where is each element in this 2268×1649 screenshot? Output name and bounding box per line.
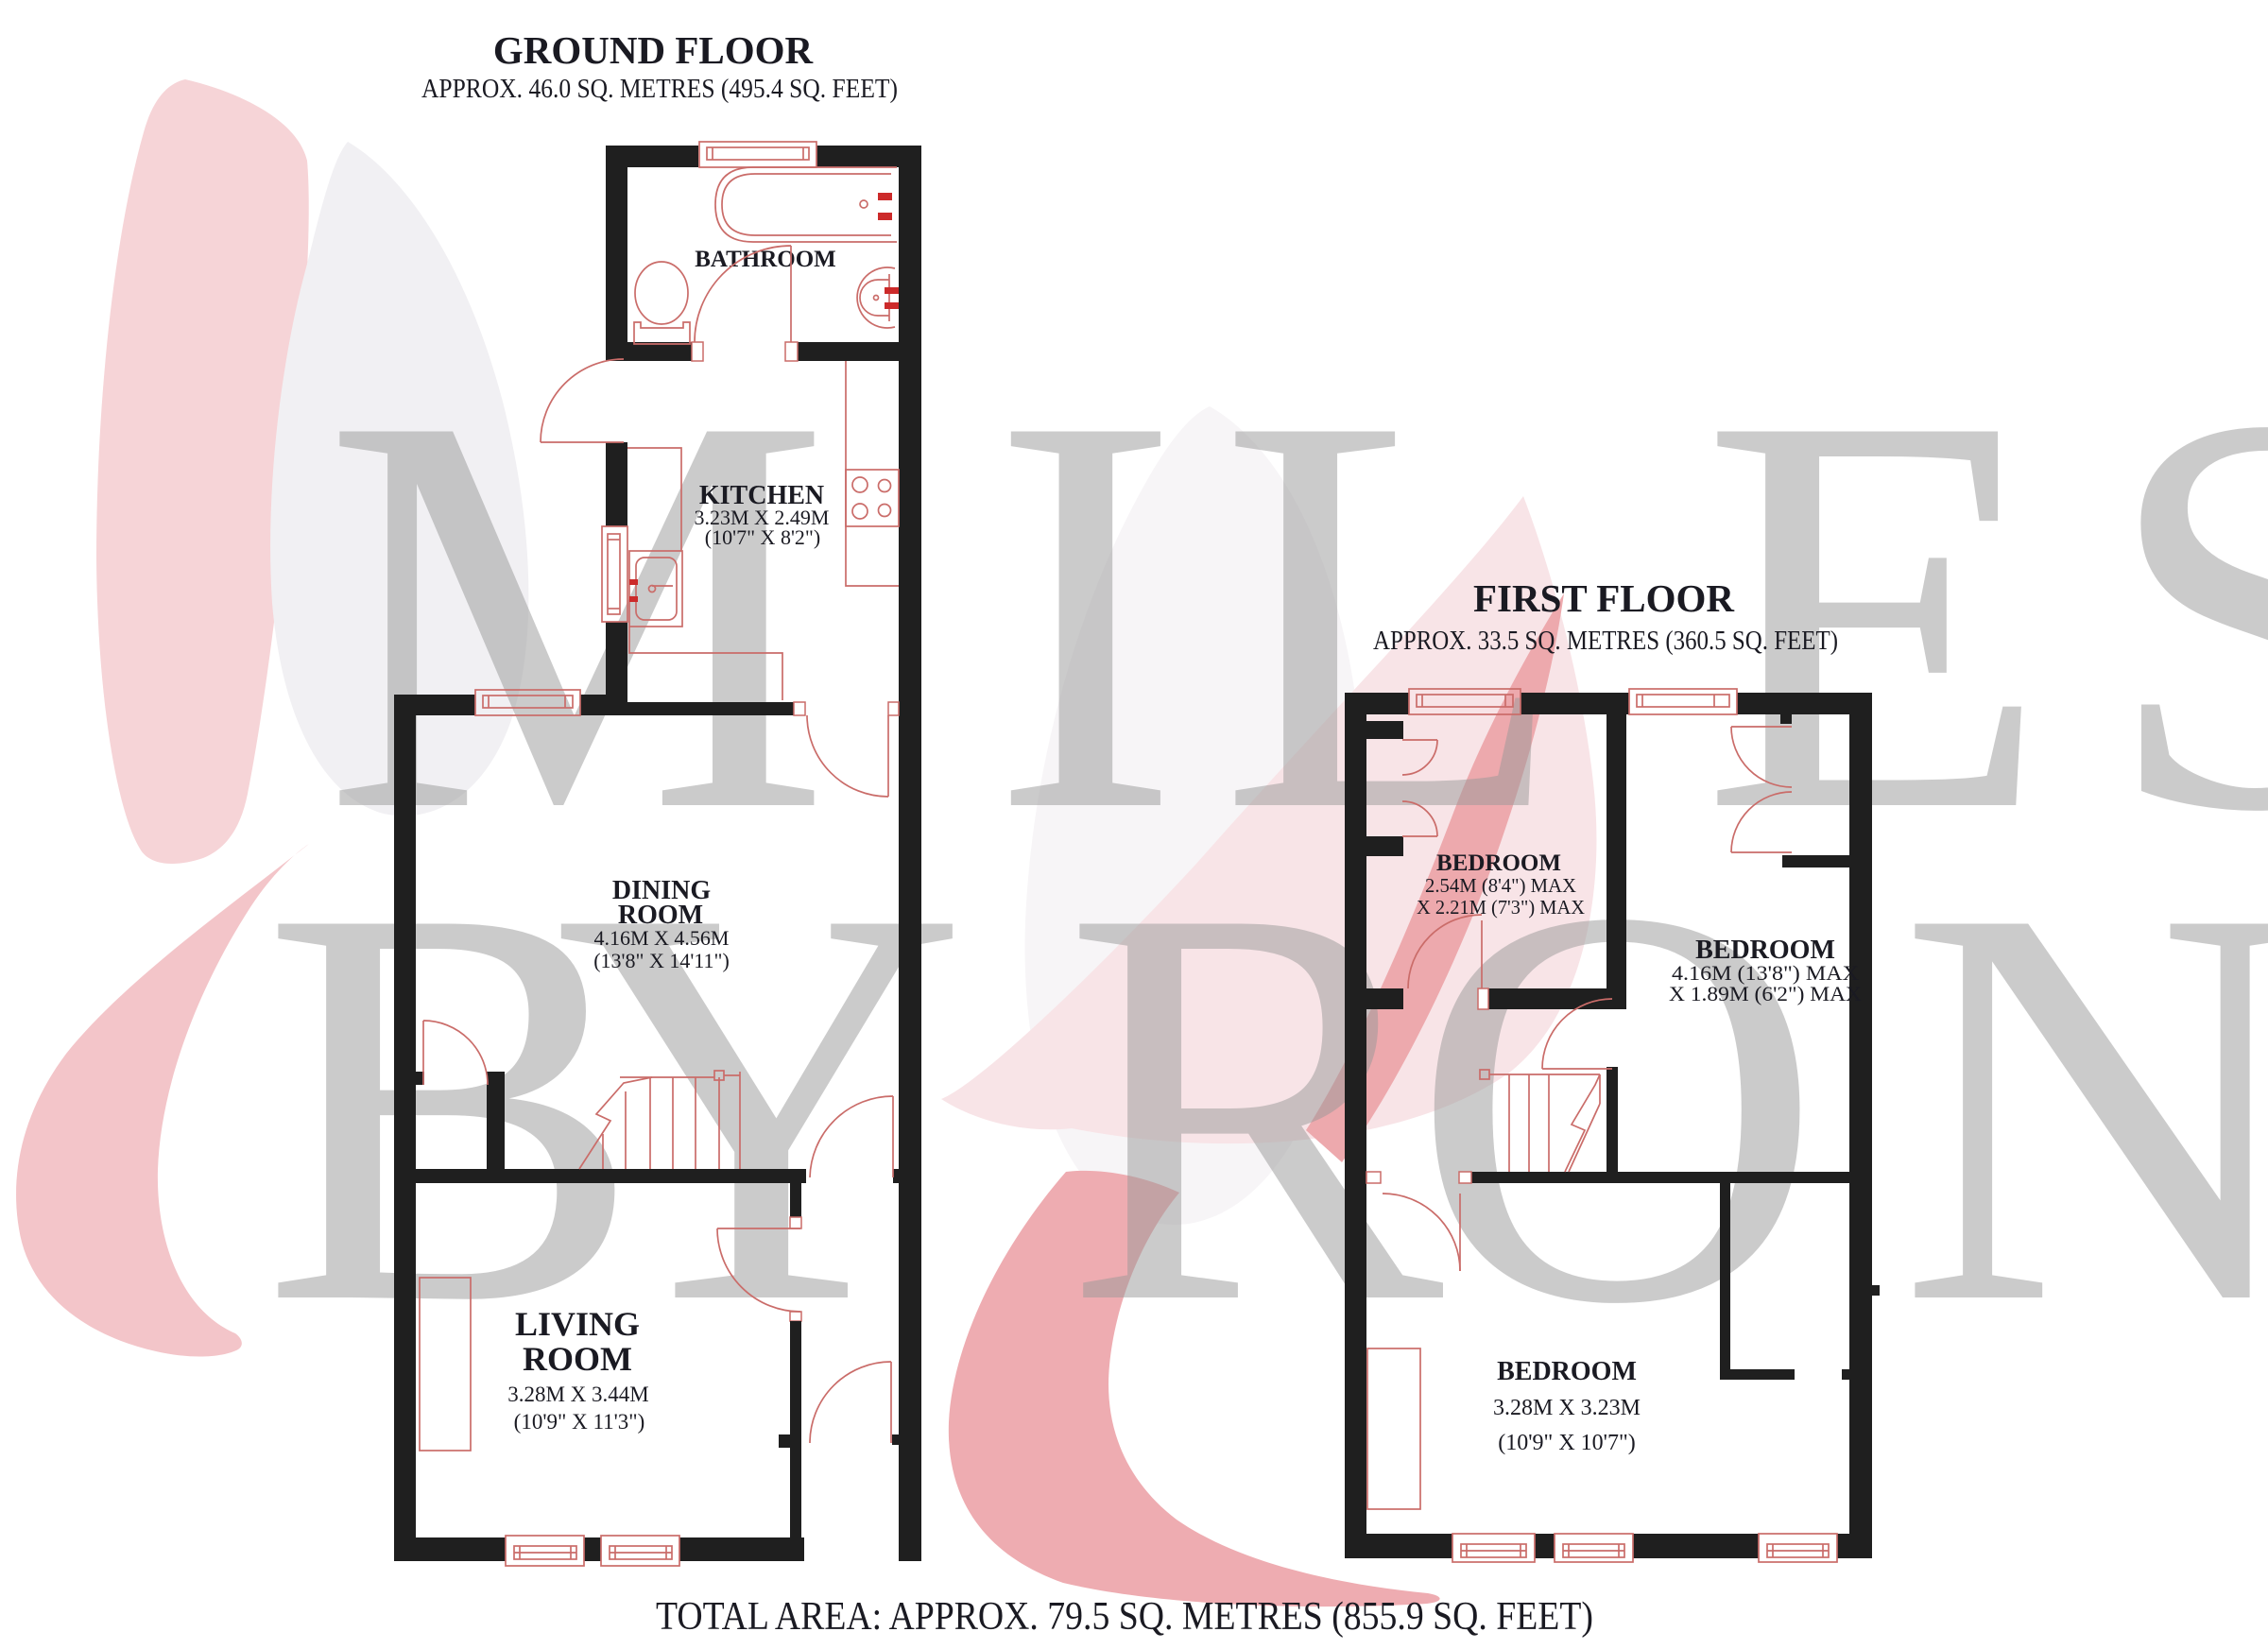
svg-text:APPROX. 46.0 SQ. METRES (495.4: APPROX. 46.0 SQ. METRES (495.4 SQ. FEET) (421, 74, 898, 104)
svg-text:3.28M X 3.23M: 3.28M X 3.23M (1493, 1396, 1641, 1420)
svg-text:(10'7" X 8'2"): (10'7" X 8'2") (705, 525, 820, 549)
svg-text:3.28M X 3.44M: 3.28M X 3.44M (507, 1383, 649, 1406)
svg-text:R: R (1063, 789, 1447, 1421)
svg-text:APPROX. 33.5 SQ. METRES (360.5: APPROX. 33.5 SQ. METRES (360.5 SQ. FEET) (1373, 626, 1838, 656)
svg-text:BATHROOM: BATHROOM (695, 247, 836, 272)
svg-text:(13'8" X 14'11"): (13'8" X 14'11") (593, 949, 730, 972)
svg-text:(10'9" X 10'7"): (10'9" X 10'7") (1498, 1431, 1636, 1455)
svg-text:4.16M X 4.56M: 4.16M X 4.56M (593, 926, 729, 950)
svg-text:2.54M (8'4") MAX: 2.54M (8'4") MAX (1425, 874, 1576, 897)
svg-text:FIRST FLOOR: FIRST FLOOR (1473, 576, 1734, 620)
svg-text:LIVING: LIVING (515, 1305, 640, 1343)
svg-text:BEDROOM: BEDROOM (1497, 1357, 1637, 1386)
svg-text:BEDROOM: BEDROOM (1436, 850, 1561, 876)
svg-text:GROUND FLOOR: GROUND FLOOR (493, 28, 814, 72)
svg-text:ROOM: ROOM (523, 1340, 632, 1378)
svg-text:TOTAL AREA: APPROX. 79.5 SQ. M: TOTAL AREA: APPROX. 79.5 SQ. METRES (855… (656, 1595, 1593, 1639)
svg-text:N: N (1899, 789, 2268, 1421)
svg-text:X 1.89M (6'2") MAX: X 1.89M (6'2") MAX (1669, 982, 1862, 1005)
svg-text:(10'9" X 11'3"): (10'9" X 11'3") (514, 1410, 645, 1434)
svg-text:X 2.21M (7'3") MAX: X 2.21M (7'3") MAX (1417, 896, 1585, 919)
